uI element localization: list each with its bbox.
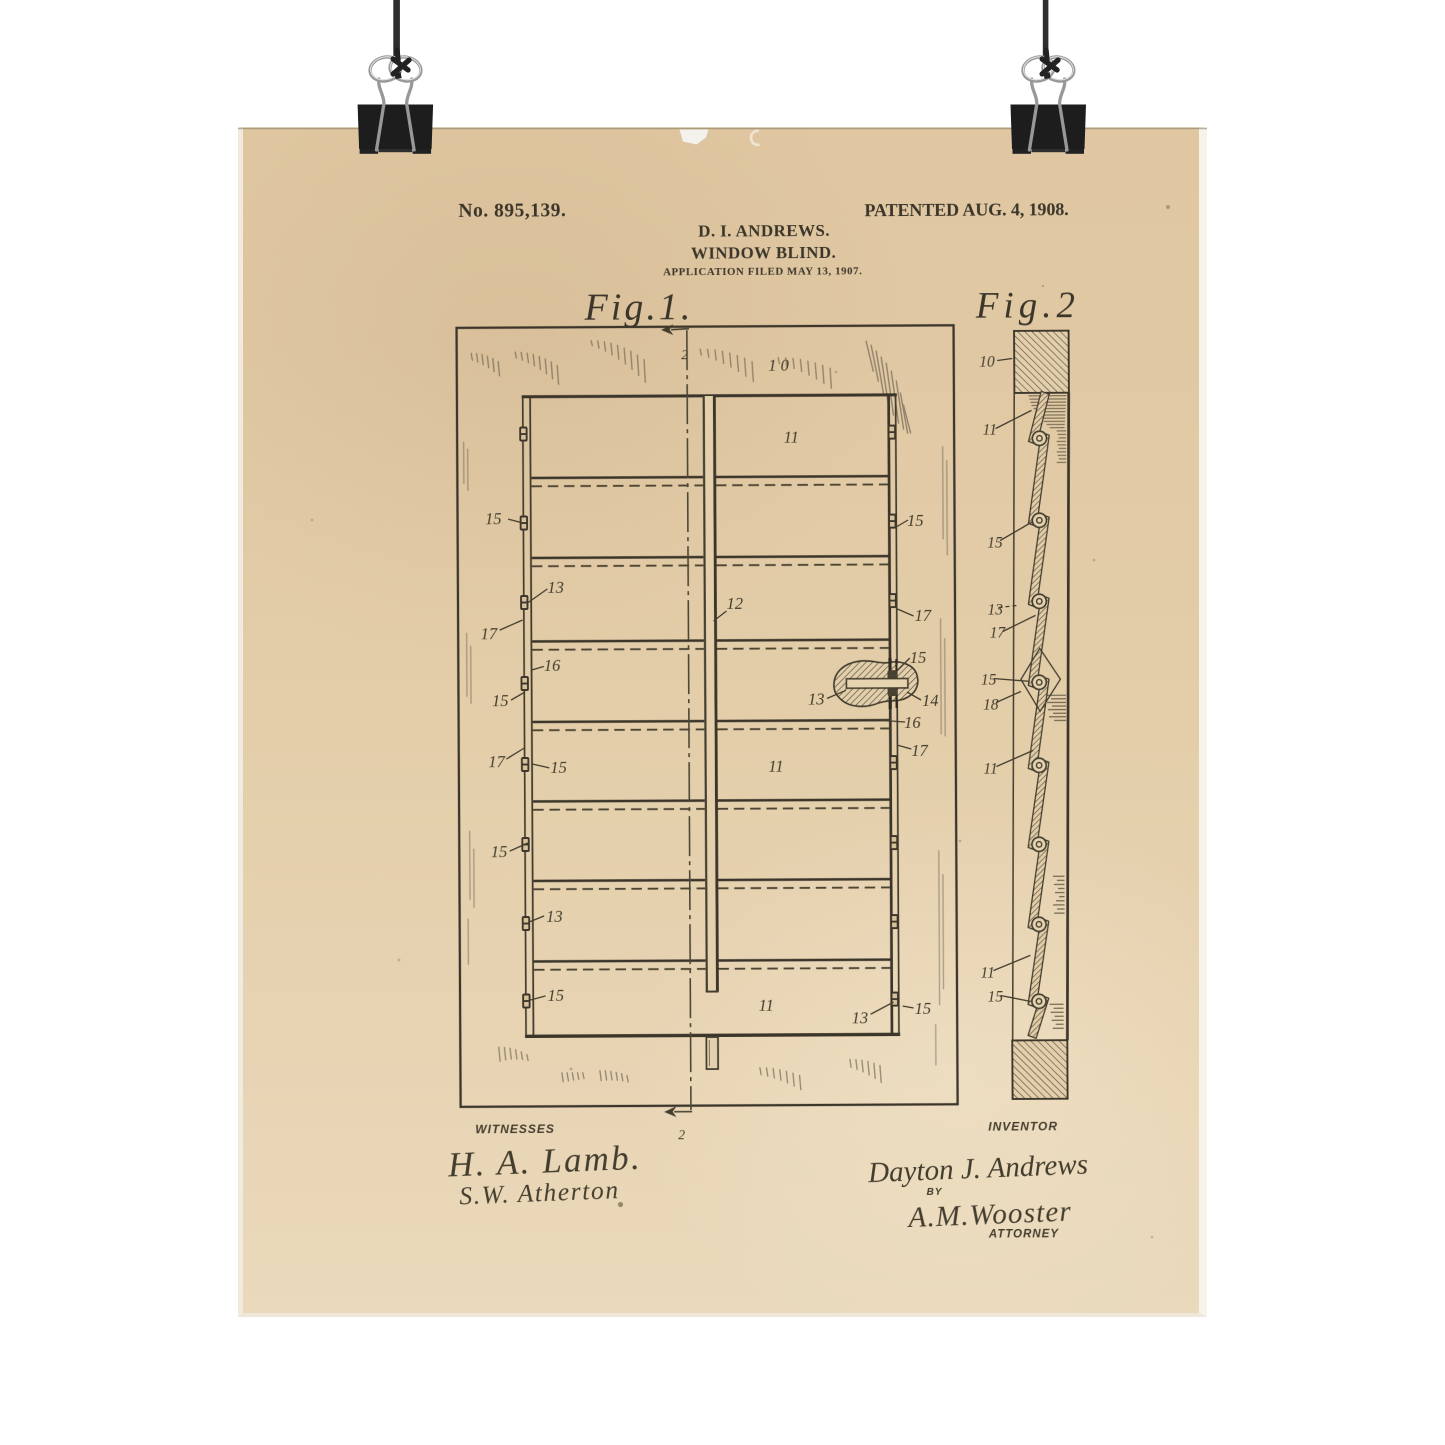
- svg-text:Fig.2: Fig.2: [975, 285, 1080, 327]
- svg-text:15: 15: [491, 842, 508, 861]
- svg-text:15: 15: [492, 691, 509, 710]
- svg-text:11: 11: [983, 422, 997, 439]
- svg-text:15: 15: [907, 511, 924, 530]
- svg-text:PATENTED AUG. 4, 1908.: PATENTED AUG. 4, 1908.: [864, 199, 1068, 220]
- svg-text:13: 13: [852, 1008, 869, 1027]
- svg-text:No. 895,139.: No. 895,139.: [458, 200, 566, 222]
- svg-text:11: 11: [784, 428, 799, 447]
- svg-text:10: 10: [979, 354, 995, 371]
- svg-text:13: 13: [987, 602, 1003, 619]
- svg-text:13: 13: [808, 689, 825, 708]
- svg-text:Dayton J. Andrews: Dayton J. Andrews: [867, 1148, 1089, 1189]
- svg-text:APPLICATION FILED MAY 13, 1907: APPLICATION FILED MAY 13, 1907.: [663, 265, 862, 278]
- svg-text:BY: BY: [927, 1187, 943, 1198]
- svg-text:15: 15: [547, 986, 564, 1005]
- svg-text:16: 16: [904, 713, 921, 732]
- svg-text:WINDOW BLIND.: WINDOW BLIND.: [691, 243, 836, 263]
- svg-text:18: 18: [983, 697, 999, 714]
- svg-text:12: 12: [726, 594, 743, 613]
- svg-text:15: 15: [981, 672, 997, 689]
- svg-text:2: 2: [678, 1127, 685, 1142]
- svg-text:15: 15: [550, 758, 567, 777]
- svg-text:17: 17: [915, 606, 932, 625]
- svg-text:15: 15: [988, 989, 1004, 1006]
- svg-text:11: 11: [768, 757, 783, 776]
- svg-text:2: 2: [681, 347, 688, 362]
- svg-text:15: 15: [485, 509, 502, 528]
- svg-text:17: 17: [481, 624, 498, 643]
- svg-text:14: 14: [922, 691, 939, 710]
- svg-text:16: 16: [544, 656, 561, 675]
- svg-text:ATTORNEY: ATTORNEY: [988, 1228, 1060, 1240]
- svg-text:WITNESSES: WITNESSES: [475, 1122, 555, 1136]
- svg-text:17: 17: [911, 741, 928, 760]
- svg-text:S.W. Atherton: S.W. Atherton: [459, 1175, 620, 1210]
- svg-text:13: 13: [547, 578, 564, 597]
- svg-text:15: 15: [915, 999, 932, 1018]
- svg-text:11: 11: [980, 965, 994, 982]
- svg-text:D. I. ANDREWS.: D. I. ANDREWS.: [698, 221, 830, 241]
- svg-text:Fig.1.: Fig.1.: [583, 286, 693, 329]
- svg-text:11: 11: [759, 996, 774, 1015]
- svg-text:15: 15: [910, 648, 927, 667]
- svg-text:13: 13: [546, 907, 563, 926]
- svg-text:INVENTOR: INVENTOR: [988, 1119, 1058, 1133]
- svg-text:17: 17: [488, 752, 505, 771]
- svg-text:17: 17: [990, 624, 1007, 641]
- svg-text:11: 11: [983, 761, 997, 778]
- svg-text:15: 15: [987, 535, 1003, 552]
- svg-text:1 0: 1 0: [768, 356, 789, 375]
